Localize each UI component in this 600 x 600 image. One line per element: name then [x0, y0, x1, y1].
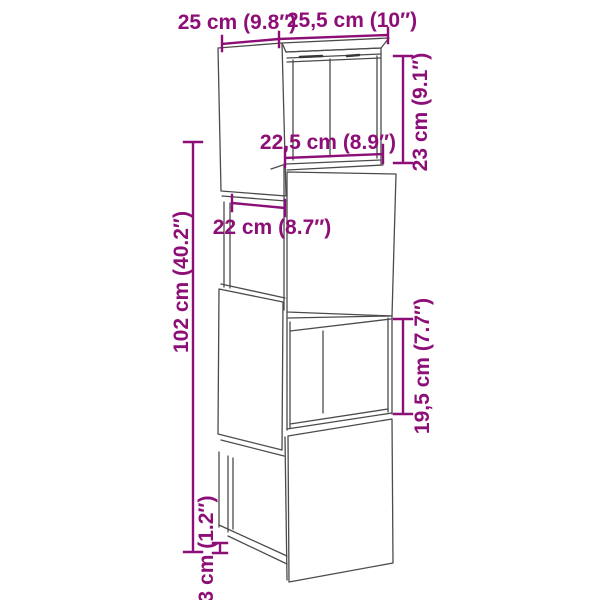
dim-top-width: 25 cm (9.8″): [178, 11, 297, 51]
dim-upper-module-height-label: 23 cm (9.1″): [409, 53, 432, 172]
dim-base-height: 3 cm (1.2″): [195, 496, 227, 600]
dim-top-depth: 25,5 cm (10″): [279, 9, 417, 43]
dim-side-opening-depth-label: 22 cm (8.7″): [213, 216, 332, 239]
dim-top-depth-label: 25,5 cm (10″): [287, 9, 417, 32]
cabinet-line-drawing: [218, 38, 396, 582]
dim-total-height: 102 cm (40.2″): [170, 142, 202, 552]
dim-lower-opening-height-label: 19,5 cm (7.7″): [411, 298, 434, 434]
dim-total-height-label: 102 cm (40.2″): [170, 211, 193, 353]
product-dimension-diagram: 25 cm (9.8″) 25,5 cm (10″) 23 cm (9.1″) …: [0, 0, 600, 600]
dim-upper-module-height: 23 cm (9.1″): [394, 53, 432, 172]
dim-lower-opening-height: 19,5 cm (7.7″): [394, 298, 434, 434]
dim-upper-opening-width-label: 22,5 cm (8.9″): [260, 131, 396, 154]
dimension-diagram-canvas: 25 cm (9.8″) 25,5 cm (10″) 23 cm (9.1″) …: [0, 0, 600, 600]
dim-top-width-label: 25 cm (9.8″): [178, 11, 297, 34]
cabinet-module-bottom: [219, 419, 393, 582]
dim-base-height-label: 3 cm (1.2″): [195, 496, 218, 600]
